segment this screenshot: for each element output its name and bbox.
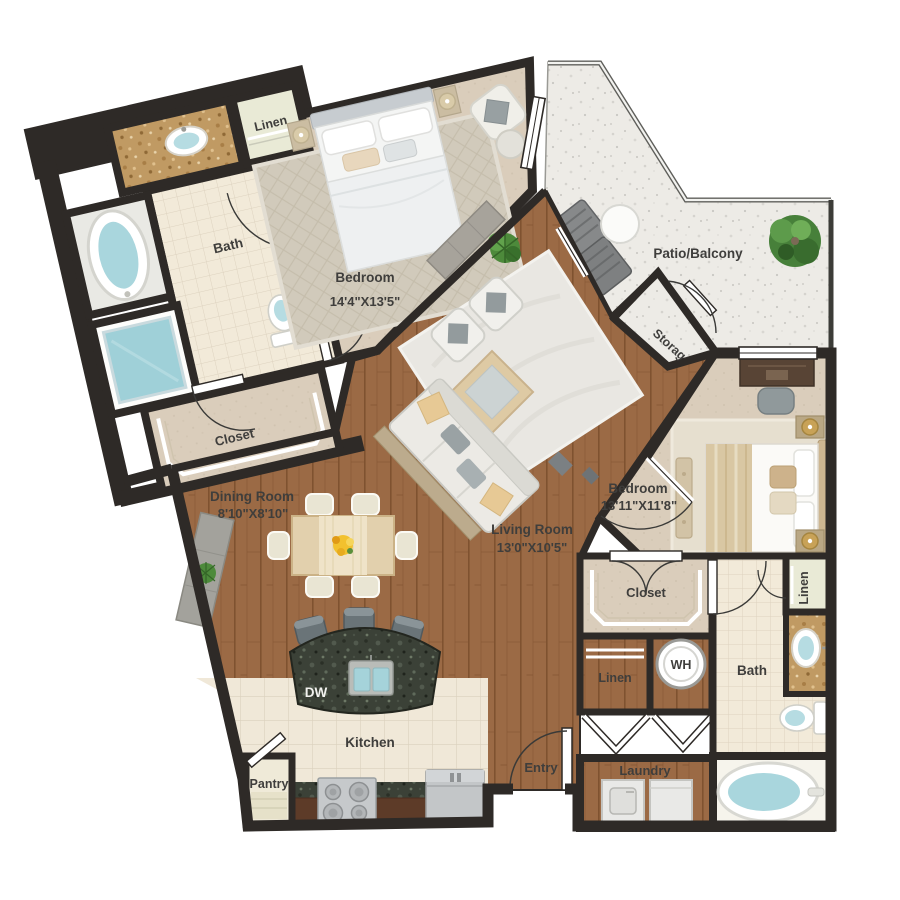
dining-label: Dining Room xyxy=(210,489,294,504)
washer xyxy=(602,780,644,822)
living-dims: 13'0"X10'5" xyxy=(497,540,568,555)
refrigerator xyxy=(426,770,484,822)
entry-label: Entry xyxy=(524,760,558,775)
patio-table xyxy=(601,205,639,243)
living-label: Living Room xyxy=(491,522,573,537)
dishwasher-label: DW xyxy=(305,685,328,700)
linen2-label: Linen xyxy=(797,571,811,604)
pantry-label: Pantry xyxy=(250,777,289,791)
dining-table xyxy=(292,516,394,575)
linen3-closet: Linen xyxy=(580,636,650,712)
bedroom1-label: Bedroom xyxy=(335,270,394,285)
dining-chair xyxy=(306,494,333,515)
dining-chair xyxy=(306,576,333,597)
patio-tree xyxy=(769,215,821,267)
entry-door xyxy=(562,728,572,790)
bedroom2-dims: 13'11"X11'8" xyxy=(601,498,677,513)
dining-chair xyxy=(396,532,417,559)
bath2-door xyxy=(708,560,717,614)
closet2: Closet xyxy=(580,551,712,636)
water-heater-label: WH xyxy=(671,658,692,672)
laundry: Laundry xyxy=(580,758,713,828)
bath2-label: Bath xyxy=(737,663,767,678)
dryer xyxy=(650,780,692,822)
water-heater-closet: WH xyxy=(650,636,712,712)
linen3-label: Linen xyxy=(598,671,631,685)
laundry-label: Laundry xyxy=(619,763,671,778)
desk-chair xyxy=(758,388,794,414)
toilet2 xyxy=(780,702,827,734)
kitchen-label: Kitchen xyxy=(345,735,395,750)
dining-chair xyxy=(268,532,289,559)
bedroom2-label: Bedroom xyxy=(608,481,667,496)
bedroom1-dims: 14'4"X13'5" xyxy=(330,294,401,309)
patio-label: Patio/Balcony xyxy=(653,246,743,261)
floor-plan-page: Patio/Balcony Storage Linen xyxy=(0,0,900,900)
floor-plan: Patio/Balcony Storage Linen xyxy=(0,0,900,900)
stove xyxy=(318,778,376,824)
closet2-label: Closet xyxy=(626,585,666,600)
dining-chair xyxy=(352,576,379,597)
dining-dims: 8'10"X8'10" xyxy=(218,506,289,521)
dining-chair xyxy=(352,494,379,515)
